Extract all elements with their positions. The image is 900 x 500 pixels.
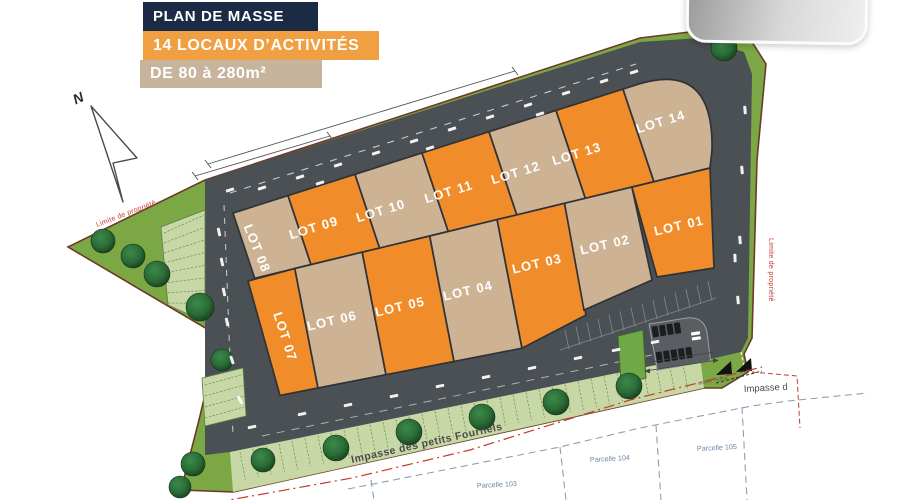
parcel-boundary [742,407,747,500]
plan-de-masse-screenshot: LOT 08LOT 09LOT 10LOT 11LOT 12LOT 13LOT … [0,0,900,500]
size-range: DE 80 à 280m² [140,60,322,88]
boundary-label-right: Limite de propriété [767,238,774,302]
subtitle-text: 14 LOCAUX D’ACTIVITÉS [153,37,359,55]
north-label: N [70,88,87,107]
parcel-label: Parcelle 104 [590,453,630,464]
subtitle-locaux: 14 LOCAUX D’ACTIVITÉS [143,31,379,60]
dimension-tick [512,67,518,75]
tree-icon [144,261,170,287]
tree-icon [211,349,233,371]
dimension-tick [205,160,211,168]
logo-placeholder [685,0,868,46]
parcel-boundary [371,480,374,500]
tree-icon [121,244,145,268]
parcel-boundary [560,447,566,500]
tree-icon [169,476,191,498]
page-title-text: PLAN DE MASSE [153,8,284,25]
parcel-label: Parcelle 105 [697,442,737,453]
parcel-boundary [656,425,661,500]
tree-icon [181,452,205,476]
dimension-chip [733,254,736,263]
north-arrow-icon [91,106,137,202]
site-plan-drawing: LOT 08LOT 09LOT 10LOT 11LOT 12LOT 13LOT … [0,0,900,500]
tree-icon [543,389,569,415]
dimension-tick [192,172,198,180]
tree-icon [323,435,349,461]
street-name-right: Impasse d [744,382,788,395]
tree-icon [251,448,275,472]
parcel-label: Parcelle 103 [477,479,517,490]
size-range-text: DE 80 à 280m² [150,65,266,83]
tree-icon [91,229,115,253]
tree-icon [616,373,642,399]
tree-icon [186,293,214,321]
page-title: PLAN DE MASSE [143,2,318,31]
